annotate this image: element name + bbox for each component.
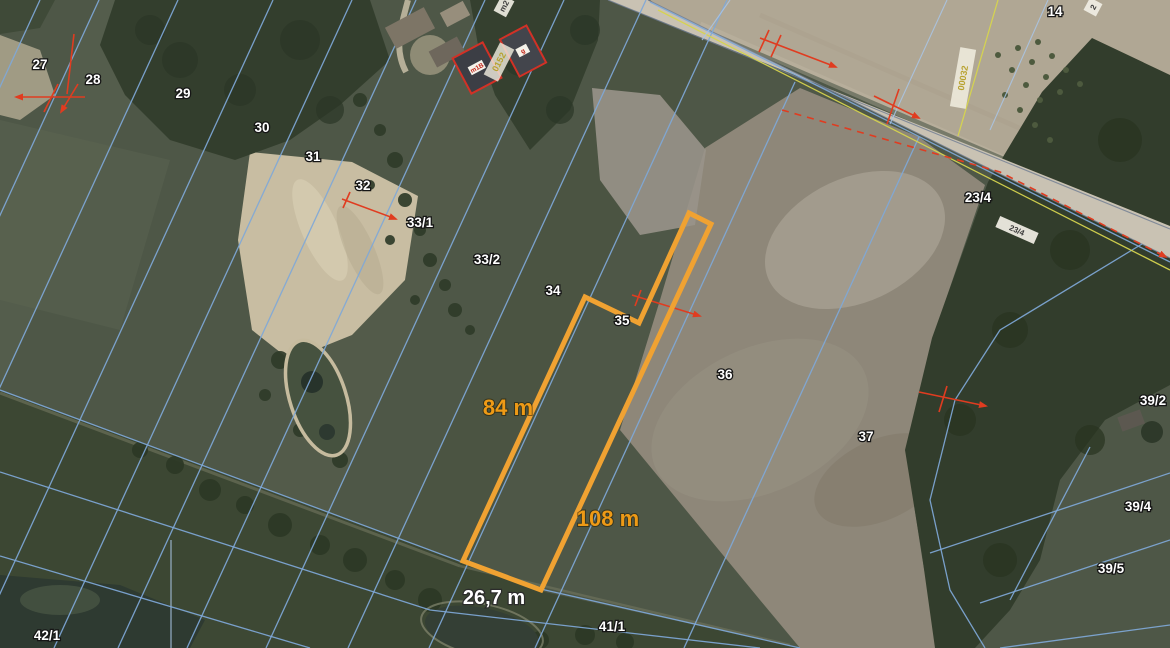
parcel-label-29: 29 (175, 86, 190, 101)
measurement-west: 84 m (483, 395, 533, 420)
parcel-label-33-1: 33/1 (407, 215, 434, 230)
parcel-label-33-2: 33/2 (474, 252, 500, 267)
parcel-label-36: 36 (717, 367, 733, 382)
parcel-label-35: 35 (614, 313, 630, 328)
parcel-label-32: 32 (355, 178, 370, 193)
parcel-label-42-1: 42/1 (34, 628, 61, 643)
parcel-label-31: 31 (305, 149, 321, 164)
parcel-label-39-4: 39/4 (1125, 499, 1152, 514)
parcel-label-14: 14 (1047, 4, 1063, 19)
parcel-label-39-2: 39/2 (1140, 393, 1166, 408)
parcel-label-34: 34 (545, 283, 561, 298)
parcel-label-39-5: 39/5 (1098, 561, 1125, 576)
parcel-label-23-4: 23/4 (965, 190, 992, 205)
parcel-label-27: 27 (32, 57, 47, 72)
parcel-label-30: 30 (254, 120, 269, 135)
map-viewport[interactable]: m1B g 23/4 00032 (0, 0, 1170, 648)
map-image: m1B g 23/4 00032 (0, 0, 1170, 648)
parcel-label-28: 28 (85, 72, 101, 87)
measurement-south: 26,7 m (463, 587, 525, 609)
parcel-label-37: 37 (858, 429, 873, 444)
measurement-east: 108 m (577, 506, 639, 531)
parcel-label-41-1: 41/1 (599, 619, 626, 634)
